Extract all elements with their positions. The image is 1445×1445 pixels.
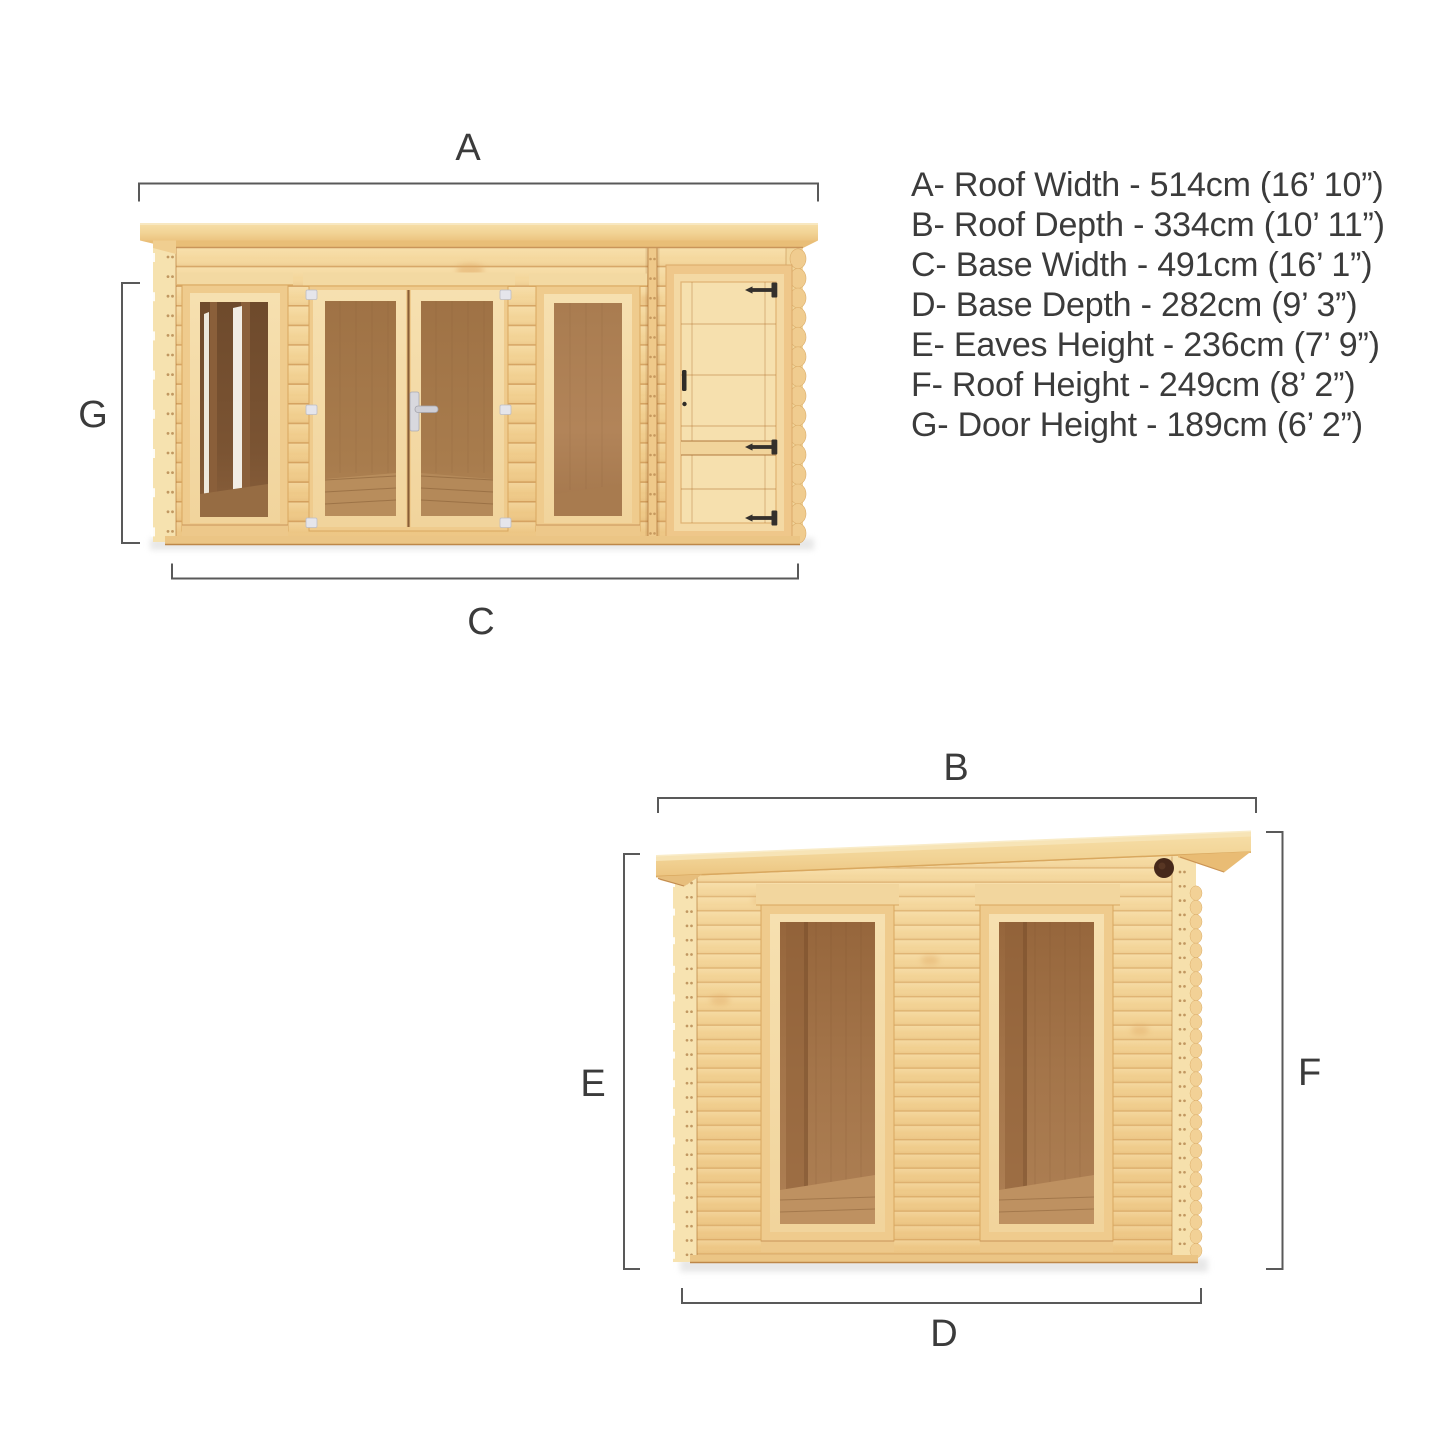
svg-text:D: D xyxy=(930,1313,957,1355)
svg-text:G: G xyxy=(78,394,108,436)
svg-text:E: E xyxy=(580,1063,605,1105)
svg-text:F: F xyxy=(1298,1052,1321,1094)
svg-text:C: C xyxy=(467,601,494,643)
svg-text:A: A xyxy=(455,127,481,169)
svg-text:B: B xyxy=(943,747,968,789)
